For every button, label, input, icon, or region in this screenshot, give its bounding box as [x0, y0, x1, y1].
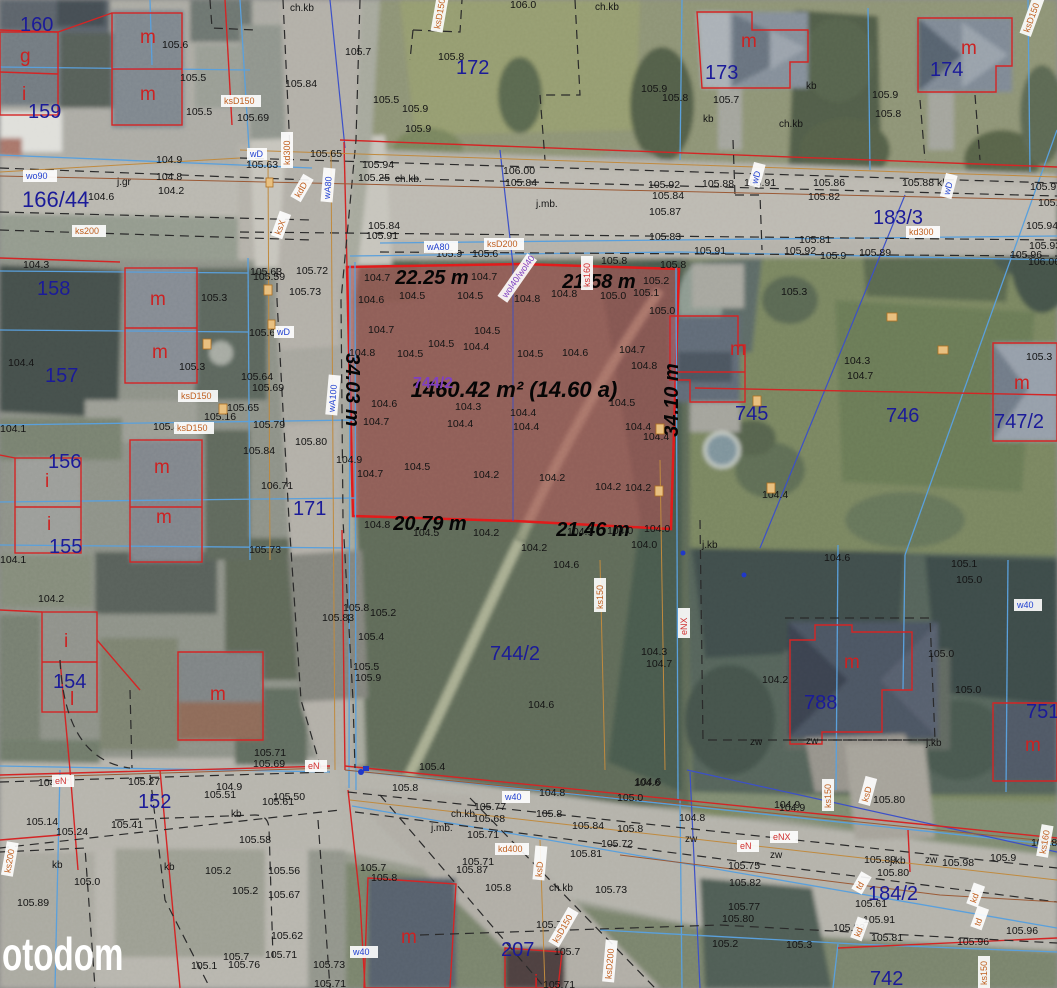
svg-text:eNX: eNX — [773, 832, 791, 842]
svg-text:105.0: 105.0 — [617, 792, 643, 804]
svg-text:104.3: 104.3 — [23, 259, 49, 271]
svg-text:105.51: 105.51 — [204, 789, 236, 801]
svg-text:105.83: 105.83 — [649, 231, 681, 243]
svg-text:105.80: 105.80 — [877, 867, 909, 879]
svg-text:105.62: 105.62 — [271, 930, 303, 942]
svg-text:104.1: 104.1 — [0, 554, 26, 566]
svg-text:104.5: 104.5 — [404, 461, 430, 473]
svg-text:ks150: ks150 — [979, 961, 989, 985]
svg-text:104.5: 104.5 — [397, 348, 423, 360]
svg-text:105.94: 105.94 — [362, 159, 394, 171]
svg-text:105.89: 105.89 — [859, 247, 891, 259]
svg-text:105.5: 105.5 — [373, 94, 399, 106]
svg-text:105.1: 105.1 — [951, 558, 977, 570]
svg-text:105.8: 105.8 — [485, 882, 511, 894]
svg-text:zw: zw — [806, 736, 819, 747]
svg-text:104.8: 104.8 — [514, 293, 540, 305]
svg-text:105.96: 105.96 — [1006, 925, 1038, 937]
svg-text:m: m — [844, 652, 860, 673]
svg-text:105.0: 105.0 — [649, 305, 675, 317]
svg-text:105.91: 105.91 — [694, 245, 726, 257]
svg-text:788: 788 — [804, 692, 837, 714]
svg-text:104.7: 104.7 — [847, 370, 873, 382]
svg-text:744/2: 744/2 — [490, 643, 540, 665]
svg-text:105.88: 105.88 — [702, 178, 734, 190]
svg-text:kd300: kd300 — [909, 227, 934, 237]
svg-text:104.6: 104.6 — [371, 398, 397, 410]
svg-text:105.2: 105.2 — [232, 885, 258, 897]
svg-text:105.6: 105.6 — [162, 39, 188, 51]
svg-text:104.5: 104.5 — [399, 290, 425, 302]
svg-text:104.2: 104.2 — [158, 185, 184, 197]
svg-text:m: m — [154, 457, 170, 478]
svg-text:104.4: 104.4 — [513, 421, 539, 433]
svg-text:105.61: 105.61 — [262, 796, 294, 808]
svg-text:751: 751 — [1026, 701, 1057, 723]
svg-text:105.84: 105.84 — [243, 445, 275, 457]
svg-text:104.6: 104.6 — [562, 347, 588, 359]
svg-text:105.71: 105.71 — [314, 978, 346, 988]
svg-text:105.8: 105.8 — [343, 602, 369, 614]
svg-text:104.9: 104.9 — [336, 454, 362, 466]
svg-text:105.80: 105.80 — [722, 913, 754, 925]
svg-text:ch.kb: ch.kb — [290, 3, 314, 14]
svg-text:m: m — [1025, 735, 1041, 756]
svg-text:105.4: 105.4 — [358, 631, 384, 643]
svg-text:104.6: 104.6 — [528, 699, 554, 711]
svg-text:104.0: 104.0 — [631, 539, 657, 551]
svg-text:zw: zw — [685, 834, 698, 845]
svg-text:eN: eN — [55, 776, 67, 786]
svg-text:105.71: 105.71 — [467, 829, 499, 841]
svg-text:ks160: ks160 — [582, 263, 592, 287]
svg-text:104.7: 104.7 — [619, 344, 645, 356]
svg-text:105.1: 105.1 — [633, 287, 659, 299]
svg-text:105.94: 105.94 — [1026, 220, 1057, 232]
svg-text:105.27: 105.27 — [128, 776, 160, 788]
svg-text:105.84: 105.84 — [652, 190, 684, 202]
svg-text:105.89: 105.89 — [17, 897, 49, 909]
svg-text:34.03 m: 34.03 m — [341, 353, 363, 426]
svg-text:105.82: 105.82 — [808, 191, 840, 203]
svg-text:104.8: 104.8 — [551, 288, 577, 300]
svg-text:l: l — [70, 689, 74, 710]
svg-text:745: 745 — [735, 403, 768, 425]
svg-text:105.63: 105.63 — [246, 159, 278, 171]
svg-text:105.58: 105.58 — [239, 834, 271, 846]
svg-text:105.72: 105.72 — [601, 838, 633, 850]
svg-text:j.gr: j.gr — [116, 177, 132, 188]
svg-text:166/44: 166/44 — [22, 187, 89, 212]
svg-text:104.6: 104.6 — [358, 294, 384, 306]
svg-text:105.0: 105.0 — [956, 574, 982, 586]
svg-text:105.3: 105.3 — [786, 939, 812, 951]
svg-text:105.93: 105.93 — [1038, 197, 1057, 209]
svg-text:105.69: 105.69 — [237, 112, 269, 124]
svg-text:105.84: 105.84 — [505, 177, 537, 189]
svg-text:104.1: 104.1 — [0, 423, 26, 435]
svg-text:104.2: 104.2 — [38, 593, 64, 605]
svg-text:kb: kb — [231, 809, 242, 820]
svg-text:ksD: ksD — [534, 861, 545, 878]
svg-text:kd400: kd400 — [498, 844, 523, 854]
svg-text:747/2: 747/2 — [994, 411, 1044, 433]
svg-text:104.7: 104.7 — [357, 468, 383, 480]
svg-text:104.2: 104.2 — [595, 481, 621, 493]
svg-text:105.0: 105.0 — [600, 290, 626, 302]
svg-text:105.73: 105.73 — [313, 959, 345, 971]
svg-text:105.82: 105.82 — [729, 877, 761, 889]
svg-text:104.4: 104.4 — [463, 341, 489, 353]
svg-text:105.4: 105.4 — [419, 761, 445, 773]
svg-text:104.9: 104.9 — [779, 802, 805, 814]
svg-text:105.77: 105.77 — [474, 801, 506, 813]
svg-text:105.68: 105.68 — [473, 813, 505, 825]
svg-text:105.8: 105.8 — [601, 255, 627, 267]
svg-text:m: m — [150, 289, 166, 310]
svg-text:kb: kb — [52, 860, 63, 871]
svg-text:106.06: 106.06 — [1028, 256, 1057, 268]
svg-text:105.65: 105.65 — [310, 148, 342, 160]
svg-text:w40: w40 — [504, 792, 522, 802]
svg-text:105.73: 105.73 — [289, 286, 321, 298]
svg-text:ks200: ks200 — [75, 226, 99, 236]
svg-text:j.kb: j.kb — [925, 738, 942, 749]
svg-text:m: m — [730, 339, 746, 360]
svg-text:105.7: 105.7 — [554, 946, 580, 958]
svg-text:105.67: 105.67 — [268, 889, 300, 901]
svg-text:105.9: 105.9 — [405, 123, 431, 135]
svg-text:105.88 kb: 105.88 kb — [902, 177, 948, 189]
svg-text:104.9: 104.9 — [156, 154, 182, 166]
svg-text:105.97: 105.97 — [1030, 181, 1057, 193]
svg-text:104.2: 104.2 — [762, 674, 788, 686]
svg-text:105.7: 105.7 — [345, 46, 371, 58]
svg-text:105.73: 105.73 — [249, 544, 281, 556]
svg-text:744/2: 744/2 — [413, 375, 453, 392]
svg-text:105.7: 105.7 — [360, 862, 386, 874]
svg-text:eNX: eNX — [679, 617, 689, 635]
svg-text:105.59: 105.59 — [253, 271, 285, 283]
svg-text:j.mb.: j.mb. — [535, 199, 558, 210]
svg-text:j.kb: j.kb — [701, 540, 718, 551]
svg-text:ksD150: ksD150 — [224, 96, 255, 106]
svg-text:w40: w40 — [352, 947, 370, 957]
svg-text:kb: kb — [164, 862, 175, 873]
svg-text:104.5: 104.5 — [609, 397, 635, 409]
svg-text:105.77: 105.77 — [728, 901, 760, 913]
svg-text:eN: eN — [740, 841, 752, 851]
svg-text:746: 746 — [886, 405, 919, 427]
svg-text:106.71: 106.71 — [261, 480, 293, 492]
svg-text:104.4: 104.4 — [8, 357, 34, 369]
svg-text:105.14: 105.14 — [26, 816, 58, 828]
svg-text:eN: eN — [308, 761, 320, 771]
svg-text:ksD150: ksD150 — [177, 423, 208, 433]
svg-text:104.8: 104.8 — [156, 171, 182, 183]
svg-text:wD: wD — [276, 327, 290, 337]
svg-text:105.69: 105.69 — [252, 382, 284, 394]
svg-text:105.56: 105.56 — [268, 865, 300, 877]
svg-text:105.81: 105.81 — [570, 848, 602, 860]
svg-text:104.6: 104.6 — [824, 552, 850, 564]
svg-text:105.41: 105.41 — [111, 819, 143, 831]
svg-text:zw: zw — [925, 855, 938, 866]
svg-text:104.5: 104.5 — [457, 290, 483, 302]
svg-text:wD: wD — [249, 149, 263, 159]
svg-text:m: m — [140, 84, 156, 105]
svg-text:105.2: 105.2 — [643, 275, 669, 287]
svg-text:w40: w40 — [1016, 600, 1034, 610]
svg-text:104.7: 104.7 — [363, 416, 389, 428]
svg-text:105.69: 105.69 — [253, 758, 285, 770]
svg-text:104.8: 104.8 — [631, 360, 657, 372]
svg-text:m: m — [741, 31, 757, 52]
svg-text:105.75: 105.75 — [728, 860, 760, 872]
svg-text:104.5: 104.5 — [474, 325, 500, 337]
svg-text:m: m — [156, 507, 172, 528]
svg-text:105.92: 105.92 — [784, 245, 816, 257]
svg-text:104.3: 104.3 — [844, 355, 870, 367]
svg-text:m: m — [401, 927, 417, 948]
svg-text:kb: kb — [703, 114, 714, 125]
svg-text:zw: zw — [770, 850, 783, 861]
svg-text:105.71: 105.71 — [543, 979, 575, 988]
svg-text:105.8: 105.8 — [392, 782, 418, 794]
svg-text:104.7: 104.7 — [646, 658, 672, 670]
svg-text:742: 742 — [870, 968, 903, 988]
svg-text:105.24: 105.24 — [56, 826, 88, 838]
svg-text:104.2: 104.2 — [473, 527, 499, 539]
svg-text:104.8: 104.8 — [364, 519, 390, 531]
svg-text:104.1: 104.1 — [567, 526, 593, 538]
svg-text:105.0: 105.0 — [74, 876, 100, 888]
svg-text:104.0: 104.0 — [607, 525, 633, 537]
svg-text:104.4: 104.4 — [510, 407, 536, 419]
svg-text:i: i — [534, 972, 538, 988]
svg-text:105.8: 105.8 — [536, 808, 562, 820]
svg-text:104.3: 104.3 — [455, 401, 481, 413]
svg-text:zw: zw — [750, 737, 763, 748]
svg-text:105.25: 105.25 — [358, 172, 390, 184]
svg-text:m: m — [1014, 373, 1030, 394]
svg-text:104.5: 104.5 — [517, 348, 543, 360]
svg-text:105.2: 105.2 — [370, 607, 396, 619]
svg-text:155: 155 — [49, 536, 82, 558]
svg-text:105.86: 105.86 — [813, 177, 845, 189]
svg-text:105.5: 105.5 — [186, 106, 212, 118]
svg-text:105.87: 105.87 — [649, 206, 681, 218]
svg-text:105.87: 105.87 — [456, 864, 488, 876]
svg-text:105.1: 105.1 — [191, 960, 217, 972]
svg-text:105.8: 105.8 — [875, 108, 901, 120]
svg-text:j.kb: j.kb — [889, 856, 906, 867]
svg-text:105.7: 105.7 — [713, 94, 739, 106]
svg-text:105.71: 105.71 — [265, 949, 297, 961]
svg-text:104.6: 104.6 — [88, 191, 114, 203]
svg-text:ks150: ks150 — [595, 585, 605, 609]
svg-text:104.3: 104.3 — [641, 646, 667, 658]
svg-text:ks150: ks150 — [823, 784, 833, 808]
svg-text:105.2: 105.2 — [712, 938, 738, 950]
svg-text:j.mb.: j.mb. — [430, 823, 453, 834]
svg-text:m: m — [961, 38, 977, 59]
svg-text:i: i — [47, 514, 51, 535]
svg-text:105.8: 105.8 — [662, 92, 688, 104]
svg-text:105.9: 105.9 — [820, 250, 846, 262]
svg-text:105.84: 105.84 — [572, 820, 604, 832]
svg-text:m: m — [210, 684, 226, 705]
svg-text:105.3: 105.3 — [1026, 351, 1052, 363]
svg-text:105.9: 105.9 — [402, 103, 428, 115]
svg-text:159: 159 — [28, 101, 61, 123]
svg-text:104.6: 104.6 — [634, 777, 660, 789]
svg-text:105.61: 105.61 — [855, 898, 887, 910]
svg-text:106.0: 106.0 — [510, 0, 536, 11]
svg-text:104.5: 104.5 — [428, 338, 454, 350]
svg-text:173: 173 — [705, 62, 738, 84]
svg-text:156: 156 — [48, 451, 81, 473]
svg-text:104.5: 104.5 — [413, 527, 439, 539]
svg-text:105.5: 105.5 — [180, 72, 206, 84]
svg-text:104.4: 104.4 — [447, 418, 473, 430]
svg-text:105.8: 105.8 — [438, 51, 464, 63]
svg-text:104.2: 104.2 — [521, 542, 547, 554]
svg-text:105.73: 105.73 — [595, 884, 627, 896]
svg-text:105.2: 105.2 — [205, 865, 231, 877]
svg-text:158: 158 — [37, 278, 70, 300]
svg-text:104.8: 104.8 — [349, 347, 375, 359]
svg-text:105.76: 105.76 — [228, 959, 260, 971]
svg-text:105.3: 105.3 — [179, 361, 205, 373]
svg-text:104.6: 104.6 — [553, 559, 579, 571]
svg-text:104.0: 104.0 — [644, 523, 670, 535]
svg-text:105.9: 105.9 — [990, 852, 1016, 864]
svg-text:105.72: 105.72 — [296, 265, 328, 277]
svg-text:g: g — [20, 46, 31, 67]
svg-text:104.2: 104.2 — [625, 482, 651, 494]
svg-text:105.9: 105.9 — [355, 672, 381, 684]
svg-text:152: 152 — [138, 791, 171, 813]
svg-text:157: 157 — [45, 365, 78, 387]
svg-text:ksD200: ksD200 — [487, 239, 518, 249]
svg-text:105.9: 105.9 — [872, 89, 898, 101]
svg-text:ch.kb: ch.kb — [549, 883, 573, 894]
svg-text:i: i — [45, 471, 49, 492]
svg-text:105.79: 105.79 — [253, 419, 285, 431]
svg-text:otodom: otodom — [2, 930, 123, 980]
svg-text:wA80: wA80 — [426, 242, 450, 252]
svg-text:207: 207 — [501, 939, 534, 961]
svg-text:104.7: 104.7 — [368, 324, 394, 336]
svg-text:105.8: 105.8 — [617, 823, 643, 835]
svg-text:105.80: 105.80 — [873, 794, 905, 806]
svg-text:105.81: 105.81 — [871, 932, 903, 944]
svg-text:105.91: 105.91 — [366, 230, 398, 242]
svg-text:m: m — [152, 342, 168, 363]
svg-text:104.8: 104.8 — [539, 787, 565, 799]
svg-text:ksD150: ksD150 — [181, 391, 212, 401]
svg-text:ch.kb: ch.kb — [595, 2, 619, 13]
svg-text:105.96: 105.96 — [957, 936, 989, 948]
svg-text:105.8: 105.8 — [660, 259, 686, 271]
svg-text:104.8: 104.8 — [679, 812, 705, 824]
svg-text:kd300: kd300 — [282, 140, 292, 165]
svg-text:105.3: 105.3 — [201, 292, 227, 304]
svg-text:kb: kb — [806, 81, 817, 92]
svg-text:106.00: 106.00 — [503, 165, 535, 177]
svg-text:105.0: 105.0 — [928, 648, 954, 660]
svg-text:105.91: 105.91 — [863, 914, 895, 926]
svg-text:22.25 m: 22.25 m — [394, 267, 468, 289]
svg-text:105.3: 105.3 — [781, 286, 807, 298]
svg-text:i: i — [22, 84, 26, 105]
svg-text:m: m — [140, 27, 156, 48]
svg-text:104.7: 104.7 — [364, 272, 390, 284]
svg-text:183/3: 183/3 — [873, 207, 923, 229]
svg-text:105.80: 105.80 — [295, 436, 327, 448]
svg-text:104.2: 104.2 — [473, 469, 499, 481]
svg-text:160: 160 — [20, 14, 53, 36]
svg-text:ch.kb.: ch.kb. — [395, 174, 422, 185]
svg-text:104.2: 104.2 — [539, 472, 565, 484]
svg-text:ch.kb: ch.kb — [779, 119, 803, 130]
svg-text:wo90: wo90 — [25, 171, 48, 181]
svg-text:105.0: 105.0 — [955, 684, 981, 696]
svg-text:171: 171 — [293, 498, 326, 520]
svg-text:105.98: 105.98 — [942, 857, 974, 869]
svg-text:174: 174 — [930, 59, 963, 81]
svg-text:wA80: wA80 — [322, 176, 334, 200]
svg-text:105.84: 105.84 — [285, 78, 317, 90]
svg-text:i: i — [64, 631, 68, 652]
svg-text:104.7: 104.7 — [471, 271, 497, 283]
